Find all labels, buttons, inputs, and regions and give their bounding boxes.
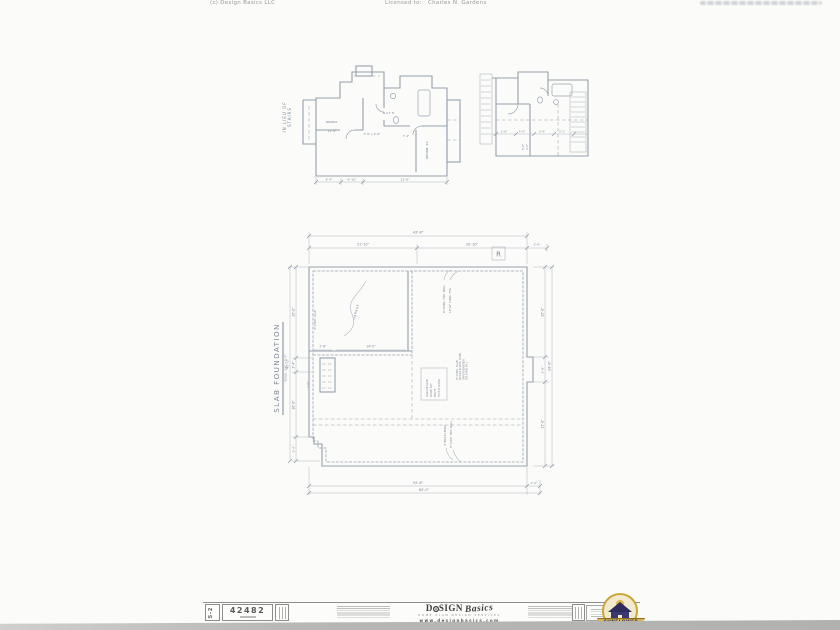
- garage-label: GARAGE: [352, 303, 360, 320]
- plan-number-underline: [240, 616, 256, 618]
- plan-number: 42482: [223, 605, 272, 616]
- detail-dim-4: 3'-1": [559, 130, 565, 134]
- dim-right-seg1: 20'-8": [541, 307, 545, 317]
- scanned-blueprint-page: { "page": { "header_copyright": "(c) Des…: [0, 0, 840, 630]
- detail-floor-plan: 2'-8" 4'-0" 5'-4" 3'-1" 6'-8" 3'-0": [480, 72, 588, 156]
- note-box-3: PER FT.: [433, 388, 437, 397]
- logo-letter-d: D: [426, 603, 433, 613]
- detail-dim-3: 5'-4": [539, 130, 545, 134]
- logo-sign: SIGN: [439, 603, 463, 613]
- garage-dim-a: 2'-8": [319, 345, 327, 349]
- logo-basics: Basics: [465, 603, 494, 615]
- toilet: [393, 117, 398, 124]
- micro-text-box-right: [572, 604, 585, 621]
- micro-text-box-left: [275, 604, 289, 621]
- alt-room1-dim: 11'-0": [328, 129, 337, 133]
- note-wall-1: 8" CONC. FND. WALL: [442, 284, 446, 313]
- detail-vdim-2: 3'-0": [525, 144, 529, 150]
- dim-top-end: 2'-0": [533, 243, 541, 247]
- note-box-1: GARAGE SLAB: [425, 379, 429, 397]
- title-block: S-2 42482 DSIGNBasics HOME PLAN DESIGN S…: [203, 602, 640, 624]
- foundation-outline: [309, 267, 533, 466]
- sink: [554, 100, 559, 105]
- dim-right-overall: 34'-8": [548, 360, 552, 371]
- garage-dim-b: 14'-0": [366, 345, 376, 349]
- detail-vdim-1: 6'-8": [521, 144, 525, 150]
- plan-title: SLAB FOUNDATION: [272, 323, 281, 413]
- note-box-2: SLOPE 1/8": [429, 383, 433, 397]
- dim-top-left: 21'-10": [357, 243, 369, 247]
- door-arc: [413, 126, 422, 135]
- dim-notch: 2'-4": [292, 445, 296, 453]
- alt-bottom-dim-2: 6'-10": [347, 178, 357, 182]
- design-basics-logo: DSIGNBasics HOME PLAN DESIGN SERVICES ww…: [393, 603, 526, 622]
- dim-left-seg2: 3'-4": [292, 361, 296, 369]
- detail-dim-1: 2'-8": [501, 130, 507, 134]
- sheet-number: S-2: [209, 607, 215, 619]
- alt-room2-label: BEDRM. #2: [425, 141, 429, 158]
- toilet: [538, 97, 543, 103]
- plan-number-box: 42482: [222, 604, 273, 621]
- alt-floor-plan: IN LIEU OF STAIRS BEDRM. 11'-0" 3'-0" x …: [282, 66, 460, 185]
- stoop: [320, 358, 335, 392]
- sheet-number-box: S-2: [205, 604, 220, 621]
- note-bot-2: 8" CONC. FND. WALL: [449, 420, 453, 448]
- fine-print-right: [528, 606, 572, 619]
- detail-plan-outline: [492, 72, 588, 156]
- note-wall-2: 16"x8" CONC. FTG.: [448, 287, 452, 313]
- door-arc: [540, 88, 548, 96]
- alt-center-dim: 3'-0" x 4'-8": [364, 132, 381, 136]
- dim-bottom-end: 2'-0": [531, 481, 539, 485]
- plan-scale-note: SCALE: 1/4" = 1'-0": [284, 354, 288, 382]
- note-box-4: TO O.H. DOOR: [437, 379, 441, 397]
- garage-note: 4" CONC. SLAB: [313, 310, 317, 330]
- blueprint-drawing: IN LIEU OF STAIRS BEDRM. 11'-0" 3'-0" x …: [0, 0, 840, 630]
- alt-hall-dim: 7'-4": [403, 134, 410, 138]
- alt-plan-outline: [316, 72, 447, 176]
- dim-right-seg2: 2'-8": [541, 366, 545, 374]
- dim-top-overall: 43'-8": [413, 231, 424, 235]
- stoop-dim: 2'-0": [306, 381, 310, 388]
- alt-room1-label: BEDRM.: [326, 120, 338, 124]
- door-arc: [346, 130, 355, 139]
- dim-top-right: 20'-10": [466, 243, 478, 247]
- dim-left-seg3: 16'-0": [292, 400, 296, 410]
- fine-print-left: [337, 606, 390, 619]
- door-arc: [508, 104, 518, 114]
- note-bot-1: 4" BRICK LEDGE: [443, 425, 447, 446]
- dim-bottom-inner: 55'-8": [413, 481, 424, 485]
- detail-dim-2: 4'-0": [519, 130, 525, 134]
- note-slab-4: ON SAND FILL: [465, 361, 469, 380]
- dim-left-seg1: 20'-8": [292, 307, 296, 317]
- dim-bottom-overall: 60'-0": [419, 488, 430, 492]
- alt-bath-label: BATH: [383, 111, 395, 115]
- revision-marker: R: [496, 251, 501, 259]
- sink: [390, 93, 395, 98]
- bathtub: [418, 90, 430, 116]
- dim-right-seg3: 11'-8": [541, 419, 545, 429]
- alt-bottom-dim-3: 12'-8": [400, 178, 410, 182]
- foundation-plan: GARAGE 2'-8" 14'-0" 4" CONC. SLAB 2'-0" …: [272, 231, 554, 496]
- alt-bottom-dim-1: 9'-4": [325, 178, 333, 182]
- alt-plan-side-label-2: STAIRS: [287, 107, 292, 127]
- stair-run-left: [480, 74, 492, 144]
- bathtub: [552, 84, 572, 96]
